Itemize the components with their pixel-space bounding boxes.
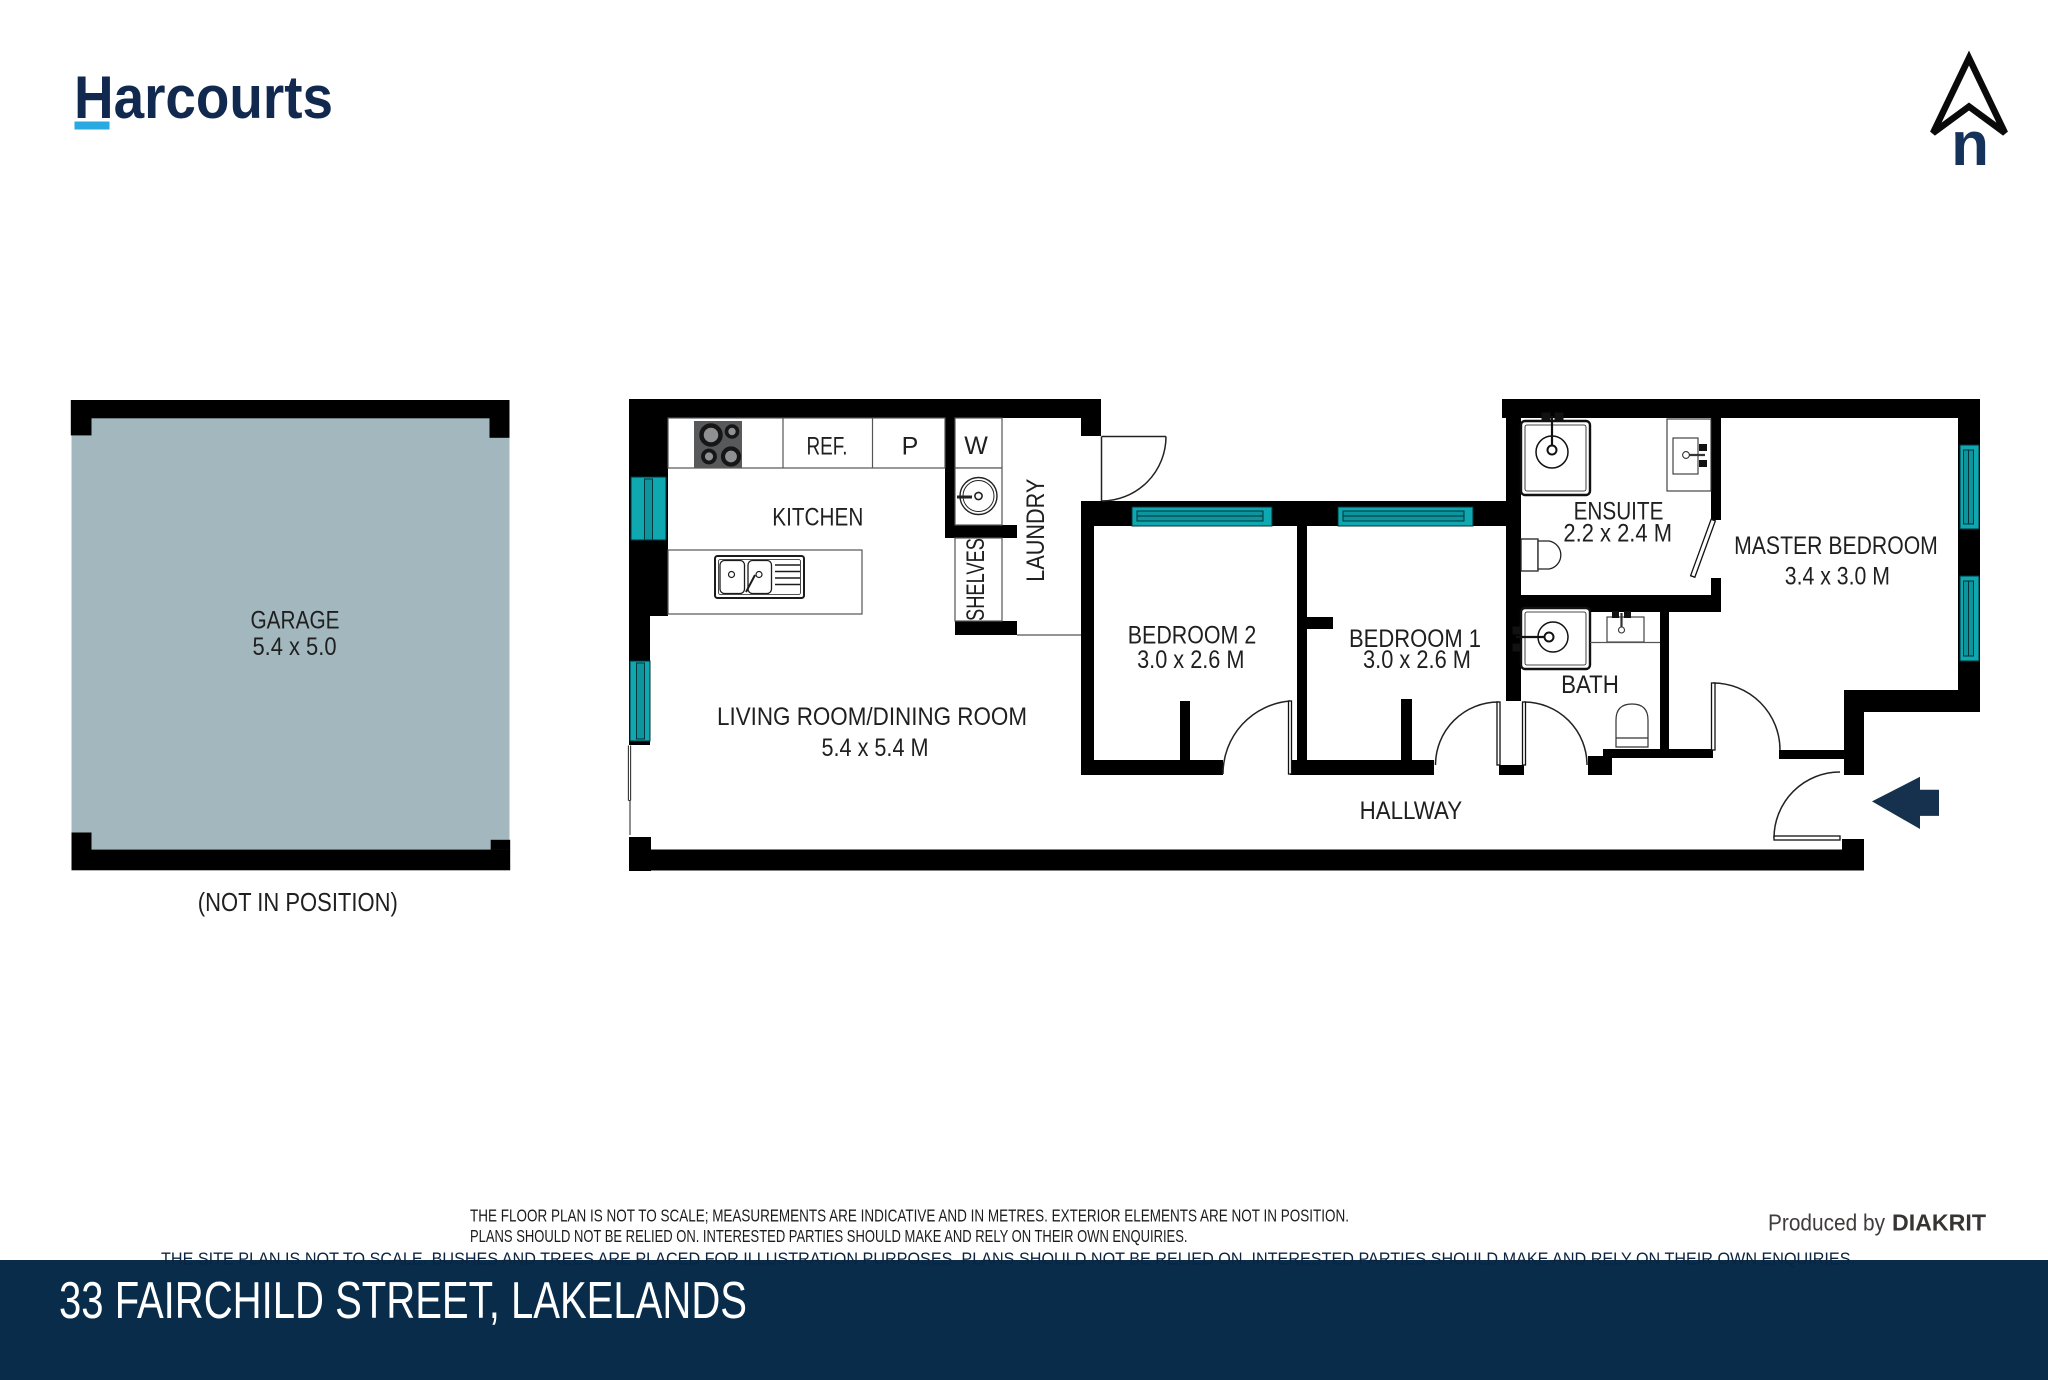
- svg-text:5.4 x 5.4 M: 5.4 x 5.4 M: [822, 734, 929, 762]
- svg-text:33 FAIRCHILD STREET, LAKELANDS: 33 FAIRCHILD STREET, LAKELANDS: [59, 1272, 747, 1330]
- svg-text:KITCHEN: KITCHEN: [772, 504, 863, 532]
- svg-text:SHELVES: SHELVES: [962, 538, 990, 621]
- svg-text:THE FLOOR PLAN IS NOT TO SCALE: THE FLOOR PLAN IS NOT TO SCALE; MEASUREM…: [470, 1206, 1349, 1226]
- svg-text:W: W: [964, 432, 988, 460]
- svg-text:5.4 x 5.0: 5.4 x 5.0: [253, 633, 337, 661]
- svg-text:BEDROOM 2: BEDROOM 2: [1128, 621, 1257, 649]
- svg-text:REF.: REF.: [807, 433, 848, 461]
- svg-text:Produced by: Produced by: [1768, 1210, 1885, 1236]
- svg-text:LIVING ROOM/DINING ROOM: LIVING ROOM/DINING ROOM: [717, 703, 1027, 731]
- svg-text:n: n: [1951, 110, 1989, 179]
- svg-text:3.4 x 3.0 M: 3.4 x 3.0 M: [1785, 562, 1890, 590]
- svg-text:PLANS SHOULD NOT BE RELIED ON.: PLANS SHOULD NOT BE RELIED ON. INTERESTE…: [470, 1226, 1188, 1246]
- svg-text:HALLWAY: HALLWAY: [1360, 797, 1463, 825]
- svg-text:GARAGE: GARAGE: [251, 606, 340, 634]
- svg-text:3.0 x 2.6 M: 3.0 x 2.6 M: [1137, 646, 1244, 674]
- svg-text:3.0 x 2.6 M: 3.0 x 2.6 M: [1363, 646, 1471, 674]
- svg-text:THE SITE PLAN IS NOT TO SCALE.: THE SITE PLAN IS NOT TO SCALE. BUSHES AN…: [161, 1249, 1855, 1269]
- svg-text:MASTER BEDROOM: MASTER BEDROOM: [1734, 532, 1938, 560]
- svg-text:P: P: [902, 433, 919, 461]
- svg-text:(NOT IN POSITION): (NOT IN POSITION): [198, 887, 398, 917]
- svg-text:2.2 x 2.4 M: 2.2 x 2.4 M: [1563, 520, 1672, 548]
- svg-text:Harcourts: Harcourts: [74, 64, 333, 131]
- svg-text:DIAKRIT: DIAKRIT: [1892, 1210, 1986, 1236]
- svg-text:LAUNDRY: LAUNDRY: [1022, 478, 1050, 581]
- svg-text:BATH: BATH: [1561, 671, 1619, 699]
